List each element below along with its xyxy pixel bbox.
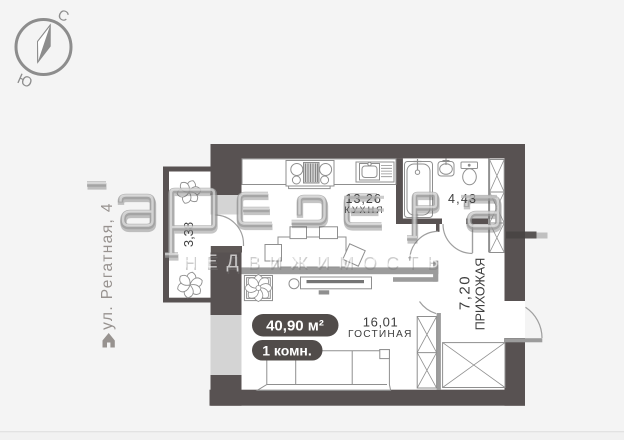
- svg-text:7,20: 7,20: [457, 275, 474, 310]
- svg-text:НЕДВИЖИМОСТЬ: НЕДВИЖИМОСТЬ: [184, 252, 448, 272]
- svg-text:ул. Регатная, 4: ул. Регатная, 4: [99, 202, 116, 330]
- svg-text:16,01: 16,01: [363, 315, 399, 330]
- svg-text:ПРИХОЖАЯ: ПРИХОЖАЯ: [474, 258, 488, 331]
- svg-text:1 комн.: 1 комн.: [262, 343, 312, 359]
- svg-text:ГОСТИНАЯ: ГОСТИНАЯ: [348, 329, 413, 340]
- svg-text:40,90 м²: 40,90 м²: [266, 318, 324, 335]
- svg-text:4,43: 4,43: [448, 192, 477, 206]
